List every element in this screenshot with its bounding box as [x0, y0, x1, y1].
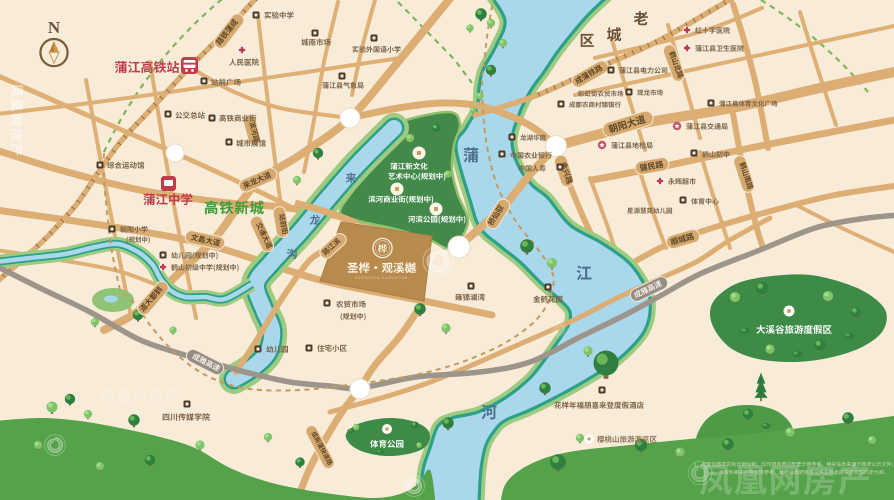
svg-text:N: N: [48, 18, 61, 37]
svg-text:SHENGHUA GUANXIYUE: SHENGHUA GUANXIYUE: [355, 276, 408, 280]
